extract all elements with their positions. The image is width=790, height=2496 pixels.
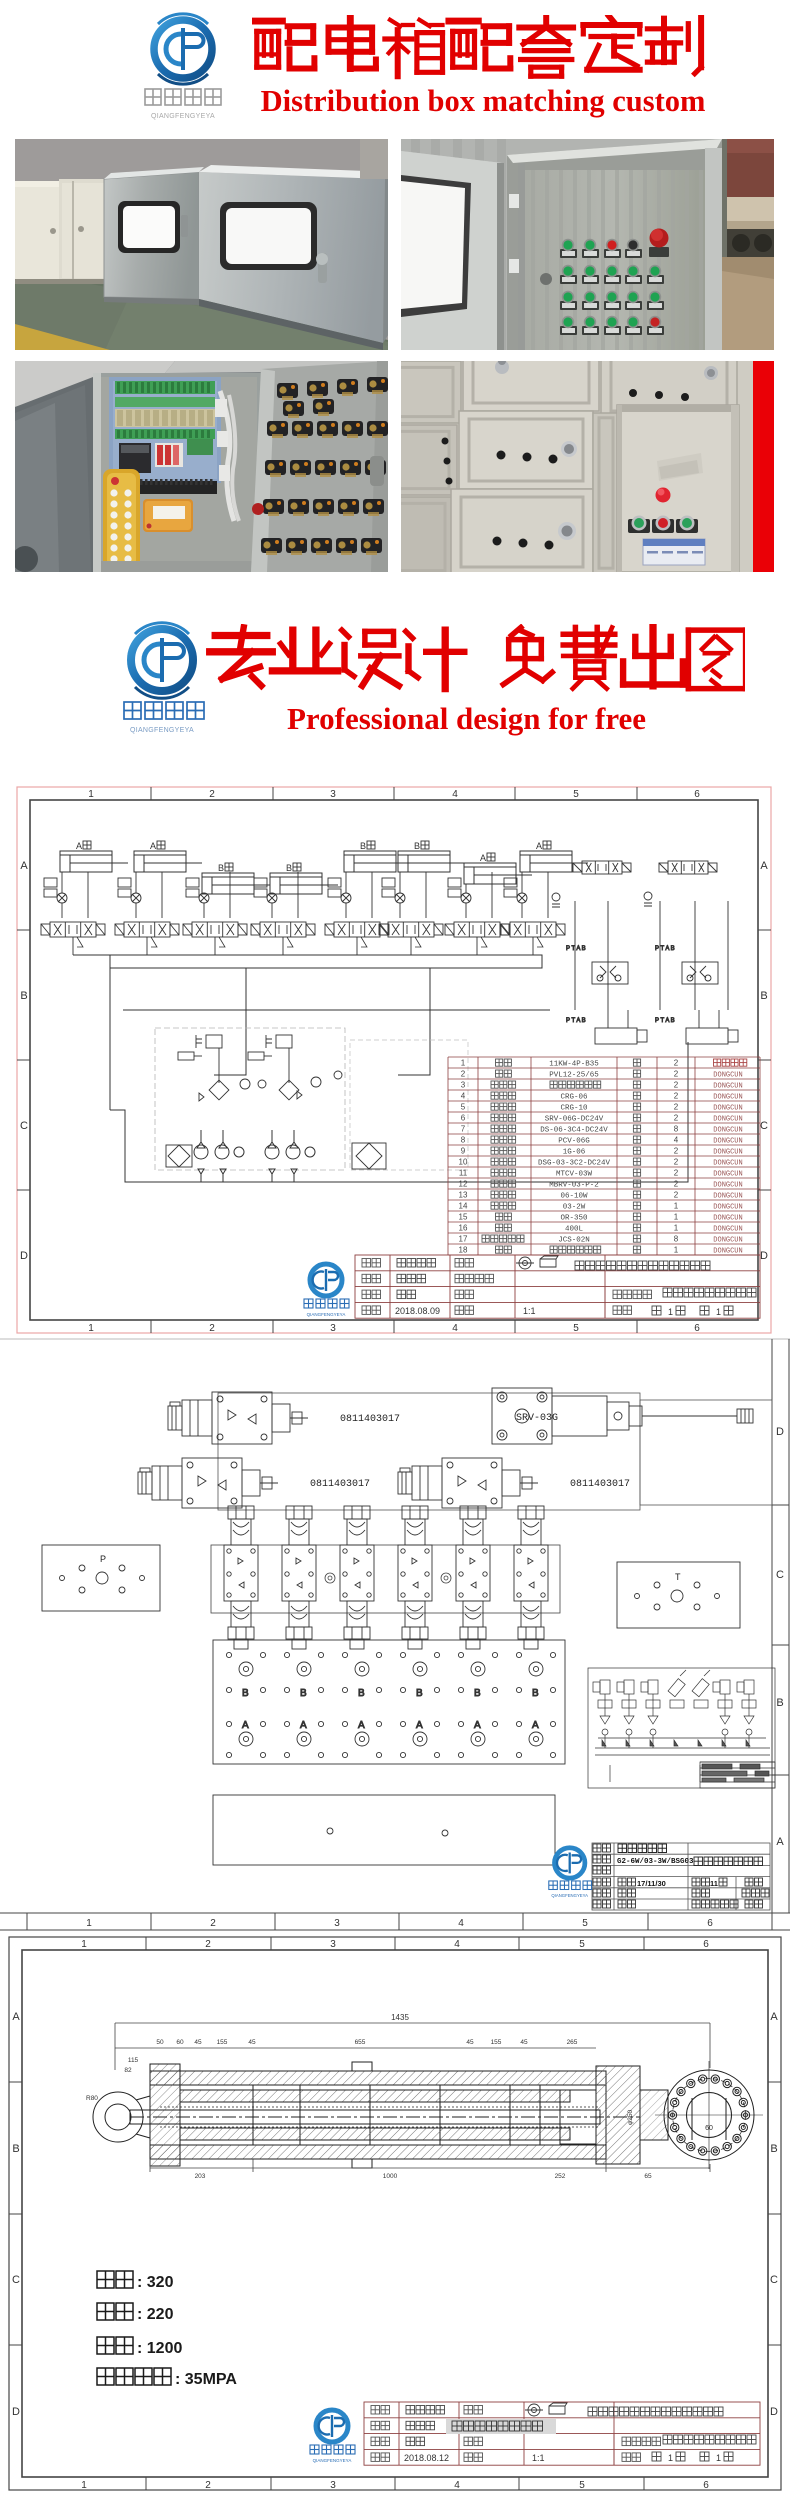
svg-text:1: 1 (674, 1246, 679, 1255)
svg-text:DONGCUN: DONGCUN (713, 1248, 742, 1256)
svg-text:11KW-4P-B35: 11KW-4P-B35 (549, 1061, 599, 1069)
svg-text:4: 4 (454, 2480, 460, 2491)
svg-text:DONGCUN: DONGCUN (713, 1094, 742, 1102)
svg-text:MBRV-03-P-2: MBRV-03-P-2 (549, 1182, 599, 1190)
svg-text:1G-06: 1G-06 (563, 1149, 586, 1157)
svg-text:2: 2 (674, 1070, 679, 1079)
svg-text:A: A (300, 1720, 307, 1731)
svg-text:C: C (760, 1120, 768, 1132)
svg-text:3: 3 (334, 1918, 340, 1929)
svg-text:DONGCUN: DONGCUN (713, 1149, 742, 1157)
svg-text:7: 7 (461, 1125, 466, 1134)
svg-text:1: 1 (668, 2453, 673, 2463)
svg-text:A: A (20, 860, 28, 872)
svg-text:2: 2 (461, 1070, 466, 1079)
svg-text:5: 5 (579, 1939, 585, 1950)
svg-text:D: D (760, 1250, 768, 1262)
svg-text:1: 1 (674, 1213, 679, 1222)
svg-text:252: 252 (555, 2173, 566, 2180)
svg-text:8: 8 (674, 1125, 679, 1134)
svg-text:2: 2 (674, 1169, 679, 1178)
svg-text:6: 6 (703, 2480, 709, 2491)
svg-text:C: C (12, 2274, 20, 2286)
svg-text:1435: 1435 (391, 2013, 409, 2022)
svg-text:2: 2 (209, 789, 215, 800)
svg-text:3: 3 (330, 1323, 336, 1334)
svg-text:D: D (776, 1426, 784, 1438)
svg-text:B: B (770, 2143, 777, 2155)
svg-text:A: A (536, 841, 542, 851)
svg-text:0811403017: 0811403017 (570, 1479, 630, 1490)
svg-text:9: 9 (461, 1147, 466, 1156)
svg-text:2: 2 (674, 1191, 679, 1200)
svg-text:B: B (776, 1697, 783, 1709)
svg-text:5: 5 (573, 1323, 579, 1334)
svg-text:2: 2 (674, 1147, 679, 1156)
svg-text:1000: 1000 (383, 2173, 398, 2180)
svg-text:60: 60 (705, 2125, 713, 2132)
svg-text:2: 2 (205, 1939, 211, 1950)
svg-text:2: 2 (674, 1081, 679, 1090)
svg-text:82: 82 (124, 2067, 132, 2074)
svg-text:B: B (12, 2143, 19, 2155)
svg-text:B: B (360, 841, 366, 851)
svg-text:B: B (218, 863, 224, 873)
svg-text:45: 45 (194, 2039, 202, 2046)
svg-text:1: 1 (668, 1307, 673, 1317)
svg-text:1: 1 (88, 789, 94, 800)
svg-text:A: A (532, 1720, 539, 1731)
svg-text:1: 1 (716, 1307, 721, 1317)
svg-text:A: A (76, 841, 82, 851)
svg-text:1: 1 (674, 1202, 679, 1211)
svg-text:17/11/30: 17/11/30 (637, 1879, 666, 1888)
svg-text:A: A (760, 860, 768, 872)
svg-text:DONGCUN: DONGCUN (713, 1072, 742, 1080)
svg-text:6: 6 (707, 1918, 713, 1929)
svg-text:1:1: 1:1 (523, 1306, 536, 1316)
svg-text:12: 12 (459, 1180, 468, 1189)
svg-text:2: 2 (674, 1103, 679, 1112)
svg-text:11: 11 (459, 1169, 468, 1178)
svg-text:5: 5 (579, 2480, 585, 2491)
svg-text:14: 14 (459, 1202, 468, 1211)
svg-text:50: 50 (156, 2039, 164, 2046)
svg-text:3: 3 (461, 1081, 466, 1090)
svg-text:B: B (358, 1688, 365, 1699)
svg-text:4: 4 (452, 789, 458, 800)
svg-text:A: A (150, 841, 156, 851)
svg-text:φ250: φ250 (627, 2110, 634, 2125)
svg-text:DONGCUN: DONGCUN (713, 1182, 742, 1190)
svg-text:A: A (474, 1720, 481, 1731)
svg-text:SRV-06G-DC24V: SRV-06G-DC24V (545, 1116, 604, 1124)
svg-text:: 220: : 220 (137, 2306, 174, 2323)
svg-text:DONGCUN: DONGCUN (713, 1105, 742, 1113)
svg-text:1: 1 (86, 1918, 92, 1929)
svg-text:4: 4 (674, 1136, 679, 1145)
svg-text:MTCV-03W: MTCV-03W (556, 1171, 593, 1179)
svg-text:B: B (300, 1688, 307, 1699)
svg-text:265: 265 (567, 2039, 578, 2046)
svg-text:: 320: : 320 (137, 2274, 174, 2291)
svg-text:5: 5 (461, 1103, 466, 1112)
svg-text:QIANGFENGYEYA: QIANGFENGYEYA (130, 727, 194, 734)
svg-text:11: 11 (710, 1879, 718, 1888)
svg-text:DONGCUN: DONGCUN (713, 1226, 742, 1234)
svg-text:03-2W: 03-2W (563, 1204, 586, 1212)
svg-text:P T A B: P T A B (655, 1018, 675, 1024)
svg-text:A: A (12, 2011, 20, 2023)
svg-text:115: 115 (128, 2057, 139, 2064)
svg-text:1: 1 (461, 1059, 466, 1068)
svg-text:3: 3 (330, 789, 336, 800)
svg-text:DONGCUN: DONGCUN (713, 1204, 742, 1212)
svg-text:P: P (100, 1554, 106, 1564)
svg-text:B: B (532, 1688, 539, 1699)
svg-text:A: A (480, 853, 486, 863)
svg-text:DS-06-3C4-DC24V: DS-06-3C4-DC24V (540, 1127, 608, 1135)
svg-text:45: 45 (520, 2039, 528, 2046)
svg-text:B: B (760, 990, 767, 1002)
svg-text:15: 15 (459, 1213, 468, 1222)
svg-text:B: B (474, 1688, 481, 1699)
svg-text:D: D (770, 2406, 778, 2418)
svg-text:65: 65 (644, 2173, 652, 2180)
svg-text:OR-350: OR-350 (560, 1215, 588, 1223)
svg-text:655: 655 (355, 2039, 366, 2046)
svg-text:JCS-02N: JCS-02N (558, 1237, 590, 1245)
svg-text:DONGCUN: DONGCUN (713, 1171, 742, 1179)
svg-text:D: D (12, 2406, 20, 2418)
svg-text:2: 2 (209, 1323, 215, 1334)
svg-text:QIANGFENGYEYA: QIANGFENGYEYA (313, 2458, 352, 2463)
svg-text:B: B (416, 1688, 423, 1699)
svg-text:2: 2 (674, 1114, 679, 1123)
svg-text:8: 8 (674, 1235, 679, 1244)
svg-text:A: A (416, 1720, 423, 1731)
svg-text:13: 13 (459, 1191, 468, 1200)
svg-text:4: 4 (452, 1323, 458, 1334)
svg-text:A: A (242, 1720, 249, 1731)
svg-text:45: 45 (248, 2039, 256, 2046)
svg-text:10: 10 (459, 1158, 468, 1167)
svg-text:P T A B: P T A B (655, 946, 675, 952)
svg-text:4: 4 (458, 1918, 464, 1929)
svg-text:400L: 400L (565, 1226, 584, 1234)
svg-text:B: B (242, 1688, 249, 1699)
svg-text:QIANGFENGYEYA: QIANGFENGYEYA (551, 1893, 588, 1898)
svg-text:2: 2 (205, 2480, 211, 2491)
svg-text:R80: R80 (86, 2095, 98, 2102)
svg-text:DONGCUN: DONGCUN (713, 1160, 742, 1168)
svg-text:DONGCUN: DONGCUN (713, 1215, 742, 1223)
svg-text:CRG-10: CRG-10 (560, 1105, 588, 1113)
svg-text:5: 5 (573, 789, 579, 800)
svg-text:4: 4 (454, 1939, 460, 1950)
svg-text:0811403017: 0811403017 (340, 1414, 400, 1425)
svg-text:1: 1 (716, 2453, 721, 2463)
svg-text:DONGCUN: DONGCUN (713, 1237, 742, 1245)
svg-text:17: 17 (459, 1235, 468, 1244)
svg-text:4: 4 (461, 1092, 466, 1101)
svg-text:16: 16 (459, 1224, 468, 1233)
svg-text:5: 5 (582, 1918, 588, 1929)
svg-text:P T A B: P T A B (566, 946, 586, 952)
svg-text:DONGCUN: DONGCUN (713, 1116, 742, 1124)
svg-text:DONGCUN: DONGCUN (713, 1193, 742, 1201)
svg-text:155: 155 (217, 2039, 228, 2046)
svg-text:2: 2 (210, 1918, 216, 1929)
svg-text:60: 60 (176, 2039, 184, 2046)
svg-text:PCV-06G: PCV-06G (558, 1138, 590, 1146)
svg-text:1:1: 1:1 (532, 2453, 545, 2463)
svg-text:A: A (776, 1836, 784, 1848)
svg-text:6: 6 (461, 1114, 466, 1123)
svg-text:2: 2 (674, 1180, 679, 1189)
svg-text:: 1200: : 1200 (137, 2340, 182, 2357)
svg-text:P T A B: P T A B (566, 1018, 586, 1024)
svg-text:1: 1 (674, 1224, 679, 1233)
svg-text:B: B (414, 841, 420, 851)
svg-text:2018.08.09: 2018.08.09 (395, 1306, 440, 1316)
svg-text:A: A (358, 1720, 365, 1731)
svg-text:1: 1 (81, 1939, 87, 1950)
svg-text:3: 3 (330, 1939, 336, 1950)
svg-text:DONGCUN: DONGCUN (713, 1127, 742, 1135)
svg-text:2: 2 (674, 1059, 679, 1068)
svg-text:45: 45 (466, 2039, 474, 2046)
svg-text:DONGCUN: DONGCUN (713, 1083, 742, 1091)
svg-text:B: B (286, 863, 292, 873)
svg-text:QIANGFENGYEYA: QIANGFENGYEYA (307, 1312, 346, 1317)
svg-text:DSG-03-3C2-DC24V: DSG-03-3C2-DC24V (538, 1160, 611, 1168)
svg-text:06-10W: 06-10W (560, 1193, 588, 1201)
svg-text:155: 155 (491, 2039, 502, 2046)
svg-text:18: 18 (459, 1246, 468, 1255)
svg-text:2: 2 (674, 1092, 679, 1101)
svg-text:8: 8 (461, 1136, 466, 1145)
svg-text:C: C (776, 1569, 784, 1581)
svg-text:1: 1 (88, 1323, 94, 1334)
svg-text:6: 6 (694, 1323, 700, 1334)
svg-text:0811403017: 0811403017 (310, 1479, 370, 1490)
svg-text:C: C (20, 1120, 28, 1132)
svg-text:6: 6 (703, 1939, 709, 1950)
svg-text:B: B (20, 990, 27, 1002)
svg-text:DONGCUN: DONGCUN (713, 1138, 742, 1146)
svg-text:A: A (770, 2011, 778, 2023)
svg-text:C: C (770, 2274, 778, 2286)
svg-text:3: 3 (330, 2480, 336, 2491)
svg-text:G2-6W/03-3W/BSG03: G2-6W/03-3W/BSG03 (617, 1858, 694, 1866)
svg-text:D: D (20, 1250, 28, 1262)
svg-text:T: T (675, 1572, 681, 1582)
svg-text:6: 6 (694, 789, 700, 800)
svg-text:SRV-03G: SRV-03G (516, 1413, 558, 1424)
svg-text:203: 203 (195, 2173, 206, 2180)
svg-text:2018.08.12: 2018.08.12 (404, 2453, 449, 2463)
svg-text:: 35MPA: : 35MPA (175, 2371, 237, 2388)
svg-text:2: 2 (674, 1158, 679, 1167)
svg-text:CRG-06: CRG-06 (560, 1094, 588, 1102)
svg-text:1: 1 (81, 2480, 87, 2491)
svg-text:PVL12-25/65: PVL12-25/65 (549, 1072, 599, 1080)
